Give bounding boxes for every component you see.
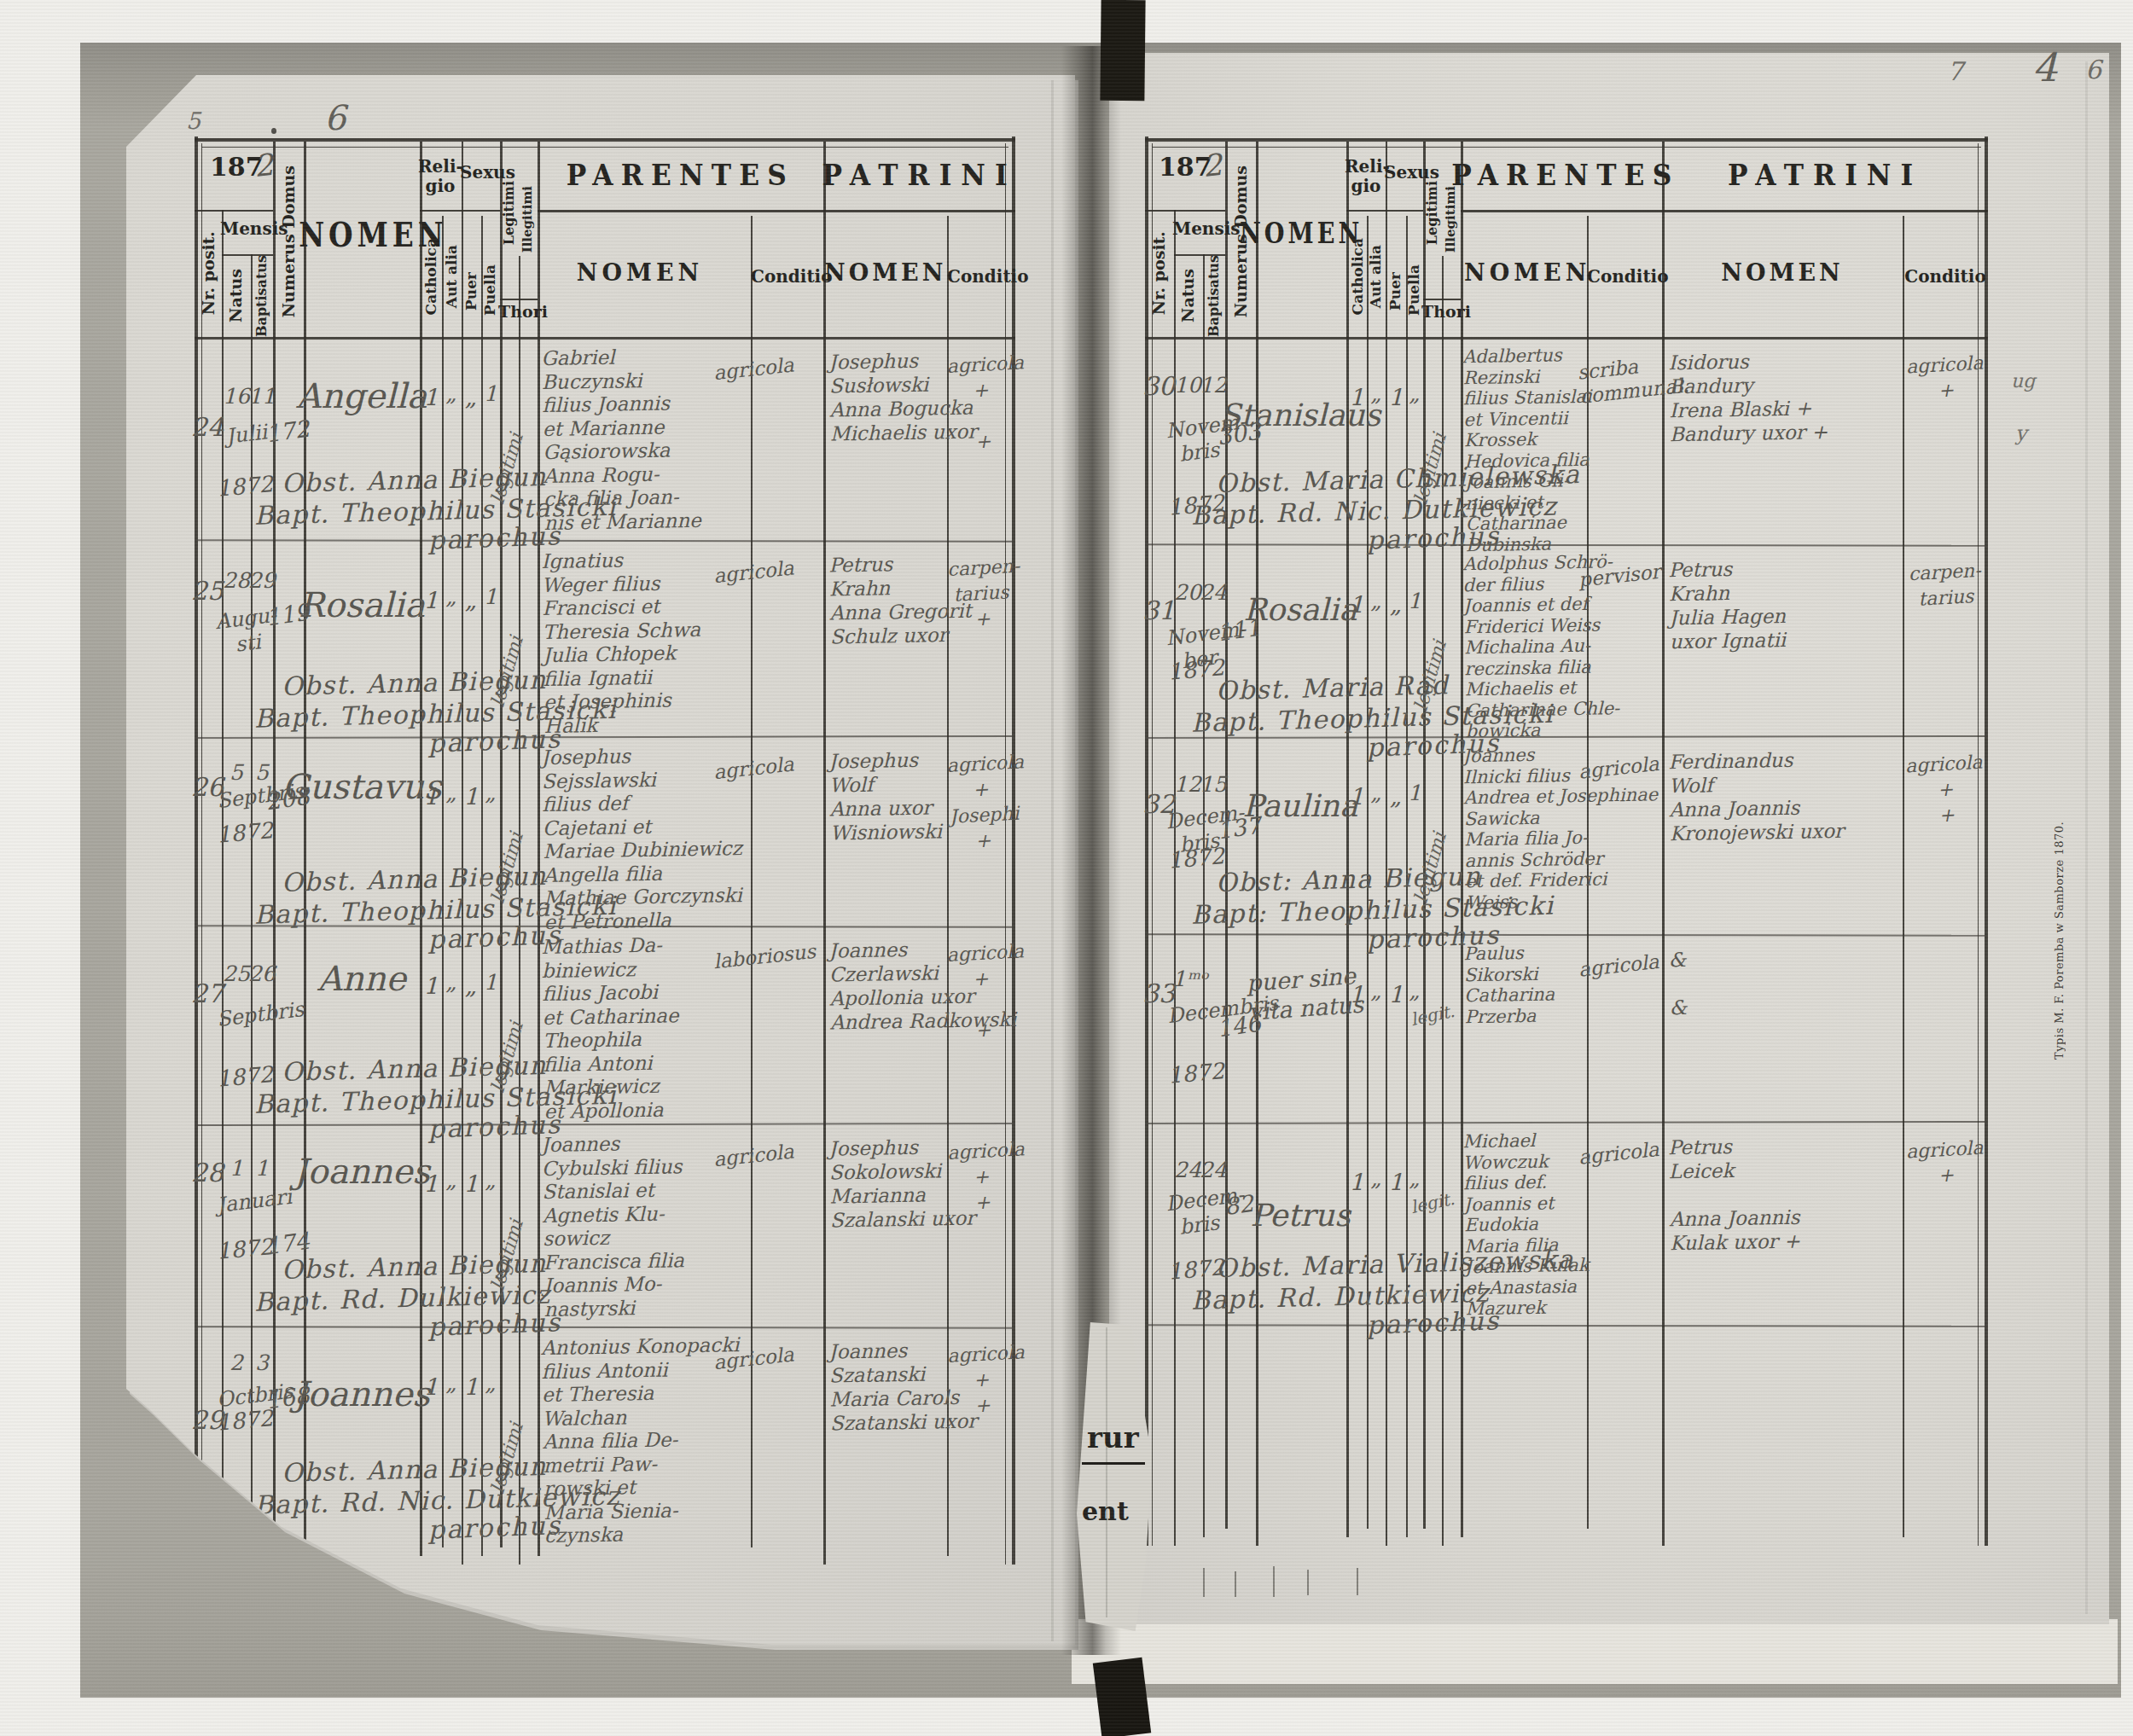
right-row-2-puella: 1 xyxy=(1404,781,1425,806)
register-scan: 5 6 MensisNatusBaptisatusNr. posit.Numer… xyxy=(0,0,2133,1736)
header-aut-alia: Aut alia xyxy=(445,245,460,308)
printer-imprint: Typis M. F. Poremba w Samborze 1870. xyxy=(2053,846,2070,1060)
right-row-2-cath: 1 xyxy=(1346,783,1367,810)
left-row-3-cath: 1 xyxy=(421,973,441,1000)
header-puella: Puella xyxy=(1407,264,1422,316)
left-row-1-aut: „ xyxy=(441,584,462,610)
right-row-3-cath: 1 xyxy=(1346,981,1367,1008)
header-catholica: Catholica xyxy=(1349,216,1367,337)
left-row-1-born: 28 xyxy=(221,568,252,594)
header-aut-alia: Aut alia xyxy=(1368,216,1385,337)
header-nomen-sub: NOMEN xyxy=(1464,261,1584,285)
right-row-4-pat-cond: agricola + xyxy=(1904,1135,1985,1191)
header-puella: Puella xyxy=(483,264,498,316)
header-mensis: Mensis xyxy=(220,220,275,238)
header-mensis: Mensis xyxy=(1172,220,1227,238)
left-row-4-born: 1 xyxy=(221,1156,252,1182)
page-edge-line xyxy=(1051,80,1054,1641)
left-row-5-cath: 1 xyxy=(421,1373,441,1401)
right-row-2-parentes: Joannes Ilnicki filius Andrea et Josephi… xyxy=(1462,744,1593,914)
right-row-4-aut: „ xyxy=(1366,1166,1386,1192)
header-religio: Reli- gio xyxy=(418,157,462,196)
outer-border-left xyxy=(1145,136,1148,1546)
header-legitimi: Legitimi xyxy=(1424,145,1441,282)
header-sub-rule xyxy=(1386,210,1423,212)
row-separator xyxy=(1148,1121,1985,1124)
header-sub-rule xyxy=(1662,210,1988,212)
left-row-2-puella: „ xyxy=(480,781,501,806)
binding-top-bar xyxy=(1100,0,1145,101)
right-row-0-parentes: Adalbertus Rezinski filius Stanislai et … xyxy=(1462,345,1594,556)
right-row-0-pat-cond: agricola + xyxy=(1904,351,1985,406)
right-row-4-bapt: 24 xyxy=(1200,1158,1227,1183)
right-row-1-aut: „ xyxy=(1366,589,1386,614)
header-sexus: Sexus xyxy=(1384,164,1425,182)
header-sexus: Sexus xyxy=(460,164,501,182)
row-separator xyxy=(198,539,1012,542)
left-row-0-puella: 1 xyxy=(480,381,501,407)
left-row-3-puer: „ xyxy=(461,973,481,1000)
right-row-4-born: 24 xyxy=(1172,1158,1203,1183)
header-puella: Puella xyxy=(482,242,499,337)
header-sub-rule xyxy=(538,210,823,212)
page-edge-line xyxy=(2085,61,2088,1614)
header-conditio: Conditio xyxy=(751,268,822,286)
left-row-0-born: 16 xyxy=(221,384,252,409)
outer-border-top xyxy=(1145,138,1988,142)
page-number-left: 6 xyxy=(324,97,346,138)
under-page-rule-stub xyxy=(1273,1566,1275,1597)
header-baptisatus: Baptisatus xyxy=(1207,255,1222,337)
left-row-3-pat-cond: agricola + + xyxy=(946,939,1016,1045)
left-row-4-puer: 1 xyxy=(461,1170,481,1198)
right-row-0-cath: 1 xyxy=(1346,384,1367,411)
right-row-2-pat-cond: agricola + + xyxy=(1904,750,1987,831)
header-numerus-domus: Numerus Domus xyxy=(281,165,298,317)
right-row-3-puella: „ xyxy=(1404,978,1425,1004)
right-row-0-puer: 1 xyxy=(1386,384,1406,411)
column-rule xyxy=(304,142,306,1565)
right-row-3-aut: „ xyxy=(1366,978,1386,1004)
left-row-4-cath: 1 xyxy=(421,1170,441,1198)
header-bottom-rule xyxy=(195,337,1015,340)
header-parentes: PARENTES xyxy=(549,160,811,191)
right-row-4-puella: „ xyxy=(1404,1166,1425,1192)
left-row-4-pat-cond: agricola + + xyxy=(947,1137,1016,1217)
header-patrini: PATRINI xyxy=(1675,160,1974,191)
right-row-4-name: Petrus xyxy=(1206,1197,1394,1234)
right-row-2-patrini: Ferdinandus Wolf Anna Joannis Kronojewsk… xyxy=(1668,746,1900,846)
register-page-left: 5 6 MensisNatusBaptisatusNr. posit.Numer… xyxy=(126,75,1075,1649)
right-row-2-aut: „ xyxy=(1366,781,1386,806)
header-baptisatus: Baptisatus xyxy=(253,253,271,340)
left-row-5-born: 2 xyxy=(221,1350,252,1376)
left-row-2-cath: 1 xyxy=(421,783,441,810)
right-row-1-born: 20 xyxy=(1172,580,1203,606)
header-thori: Thori xyxy=(498,304,539,321)
header-illegitimi: Illegitimi xyxy=(1444,186,1458,253)
right-row-2-born: 12 xyxy=(1172,772,1203,798)
fragment-text-top: rur xyxy=(1087,1423,1139,1454)
page-number-left-small: 5 xyxy=(186,107,201,135)
header-nr-posit: Nr. posit. xyxy=(201,231,218,315)
right-row-3-puer: 1 xyxy=(1386,981,1406,1008)
header-aut-alia: Aut alia xyxy=(1369,245,1384,308)
right-row-4-parentes: Michael Wowczuk filius def. Joannis et E… xyxy=(1462,1129,1594,1320)
outer-border-left-inner xyxy=(1152,143,1153,1546)
left-row-5-puer: 1 xyxy=(461,1373,481,1401)
fragment-crease xyxy=(1106,1327,1107,1617)
header-sub-rule xyxy=(1423,299,1461,300)
header-aut-alia: Aut alia xyxy=(443,216,461,337)
right-row-4-cath: 1 xyxy=(1346,1169,1367,1196)
header-conditio: Conditio xyxy=(1903,268,1988,286)
header-natus: Natus xyxy=(228,269,245,322)
column-rule xyxy=(1256,142,1258,1546)
header-legitimi: Legitimi xyxy=(1426,181,1440,245)
left-row-4-puella: „ xyxy=(480,1168,501,1193)
page-number-right: 4 xyxy=(2032,44,2057,91)
outer-border-top-inner xyxy=(201,147,1008,148)
left-row-5-aut: „ xyxy=(441,1371,462,1396)
header-baptisatus: Baptisatus xyxy=(255,255,270,337)
left-row-1-puer: „ xyxy=(461,587,481,614)
row-separator xyxy=(1148,933,1985,936)
row-separator xyxy=(1148,1324,1985,1327)
right-row-0-aut: „ xyxy=(1366,381,1386,407)
left-row-5-pat-cond: agricola + + xyxy=(947,1340,1016,1420)
fragment-text-bottom: ent xyxy=(1082,1498,1129,1525)
header-baptisatus: Baptisatus xyxy=(1206,253,1223,340)
header-conditio: Conditio xyxy=(1587,268,1662,286)
header-puella: Puella xyxy=(1406,242,1422,337)
header-puer: Puer xyxy=(464,272,479,311)
right-row-4-patrini: Petrus Leicek Anna Joannis Kulak uxor + xyxy=(1668,1132,1900,1256)
header-sub-rule xyxy=(462,210,500,212)
under-pages-edge xyxy=(1072,1619,2118,1684)
left-row-2-aut: „ xyxy=(441,781,462,806)
header-year-handwritten: 2 xyxy=(1201,145,1239,186)
header-sub-rule xyxy=(420,210,462,212)
header-nr-posit: Nr. posit. xyxy=(197,210,220,337)
column-rule xyxy=(273,142,276,1547)
under-page-rule-stub xyxy=(1307,1570,1309,1595)
right-row-2-puer: „ xyxy=(1386,783,1406,810)
header-year-handwritten: 2 xyxy=(253,145,290,186)
right-row-3-year: 1872 xyxy=(1161,1058,1231,1090)
under-page-rule-stub xyxy=(1357,1568,1358,1595)
right-row-1-puer: „ xyxy=(1386,591,1406,618)
left-row-0-pat-cond: agricola + + xyxy=(946,351,1016,456)
header-legitimi: Legitimi xyxy=(501,145,518,282)
under-page-rule-stub xyxy=(1235,1571,1236,1597)
column-rule xyxy=(1903,216,1904,1537)
header-sub-rule xyxy=(1346,210,1386,212)
left-row-2-pat-cond: agricola + Josephi + xyxy=(946,750,1016,856)
header-parentes: PARENTES xyxy=(1451,160,1671,191)
left-row-1-cath: 1 xyxy=(421,587,441,614)
right-row-1-parentes: Adolphus Schrö- der filius Joannis et de… xyxy=(1462,552,1594,742)
outer-border-left xyxy=(195,136,198,1565)
left-row-2-puer: 1 xyxy=(461,783,481,810)
header-nomen-sub: NOMEN xyxy=(543,261,737,285)
header-patrini: PATRINI xyxy=(819,160,1020,191)
right-row-1-pat-cond: carpen- tarius xyxy=(1904,558,1985,613)
column-rule xyxy=(538,142,540,1556)
header-religio: Reli- gio xyxy=(1345,157,1387,196)
ink-dot xyxy=(271,128,276,134)
header-illegitimi: Illegitimi xyxy=(520,145,537,294)
left-row-0-aut: „ xyxy=(441,381,462,407)
header-natus: Natus xyxy=(224,254,249,337)
header-puer: Puer xyxy=(1388,272,1404,311)
left-row-0-cath: 1 xyxy=(421,384,441,411)
margin-mark-a: ug xyxy=(2011,370,2035,392)
right-row-0-puella: „ xyxy=(1404,381,1425,407)
left-row-5-puella: „ xyxy=(480,1371,501,1396)
header-nomen-sub: NOMEN xyxy=(824,261,945,285)
left-row-3-born: 25 xyxy=(221,961,252,987)
fragment-rule xyxy=(1082,1462,1145,1465)
binding-bottom-bar xyxy=(1093,1658,1151,1736)
header-puer: Puer xyxy=(463,246,480,337)
column-rule xyxy=(1174,210,1176,1546)
header-nr-posit: Nr. posit. xyxy=(1151,231,1168,315)
margin-mark-b: y xyxy=(2015,421,2027,446)
outer-border-left-inner xyxy=(201,143,202,1565)
right-row-3-born: 1ᵐᵒ xyxy=(1172,967,1203,992)
left-row-2-born: 5 xyxy=(221,760,252,786)
header-sub-rule xyxy=(823,210,1015,212)
row-separator xyxy=(198,1326,1012,1328)
header-nomen-sub: NOMEN xyxy=(1671,261,1894,285)
header-catholica: Catholica xyxy=(424,238,439,315)
left-row-1-puella: 1 xyxy=(480,584,501,610)
left-row-0-puer: „ xyxy=(461,384,481,411)
right-row-3-patrini: & & xyxy=(1668,944,1899,1020)
outer-border-right xyxy=(1985,136,1988,1546)
left-row-0-year: 1872 xyxy=(211,471,279,503)
header-natus: Natus xyxy=(1176,254,1201,337)
left-row-3-aut: „ xyxy=(441,970,462,996)
right-row-0-bapt: 12 xyxy=(1200,373,1227,398)
page-number-right-note: 7 xyxy=(1947,56,1963,87)
right-row-1-cath: 1 xyxy=(1346,591,1367,618)
header-legitimi: Legitimi xyxy=(503,181,517,245)
outer-border-top-inner xyxy=(1152,147,1981,148)
left-row-4-aut: „ xyxy=(441,1168,462,1193)
right-row-1-puella: 1 xyxy=(1404,589,1425,614)
header-puer: Puer xyxy=(1387,246,1404,337)
header-sub-rule xyxy=(500,299,538,300)
left-row-2-year: 1872 xyxy=(211,817,279,850)
column-rule xyxy=(462,142,463,1565)
header-nomen: NOMEN xyxy=(299,217,425,253)
under-page-rule-stub xyxy=(1203,1568,1205,1597)
left-row-5-bapt: 3 xyxy=(248,1350,276,1376)
header-bottom-rule xyxy=(1145,337,1988,340)
header-natus: Natus xyxy=(1180,269,1197,322)
right-row-0-born: 10 xyxy=(1172,373,1203,398)
header-sub-rule xyxy=(1461,210,1662,212)
header-nr-posit: Nr. posit. xyxy=(1148,210,1171,337)
right-row-4-puer: 1 xyxy=(1386,1169,1406,1196)
header-catholica: Catholica xyxy=(422,216,441,337)
row-separator xyxy=(198,1123,1012,1126)
left-row-1-pat-cond: carpen- tarius + xyxy=(947,554,1016,634)
right-row-1-patrini: Petrus Krahn Julia Hagen uxor Ignatii xyxy=(1668,554,1900,654)
header-conditio: Conditio xyxy=(947,268,1015,286)
right-row-0-patrini: Isidorus Bandury Irena Blaski + Bandury … xyxy=(1668,347,1900,447)
right-row-3-parentes: Paulus Sikorski Catharina Przerba xyxy=(1463,942,1593,1028)
outer-border-top xyxy=(195,138,1015,142)
header-illegitimi: Illegitimi xyxy=(521,186,535,253)
column-rule xyxy=(420,142,422,1556)
left-row-3-puella: 1 xyxy=(480,970,501,996)
register-page-right: 7 4 6 ug y Typis M. F. Poremba w Samborz… xyxy=(1109,53,2109,1624)
header-thori: Thori xyxy=(1421,304,1462,321)
header-nomen: NOMEN xyxy=(1240,218,1363,249)
header-catholica: Catholica xyxy=(1351,238,1366,315)
